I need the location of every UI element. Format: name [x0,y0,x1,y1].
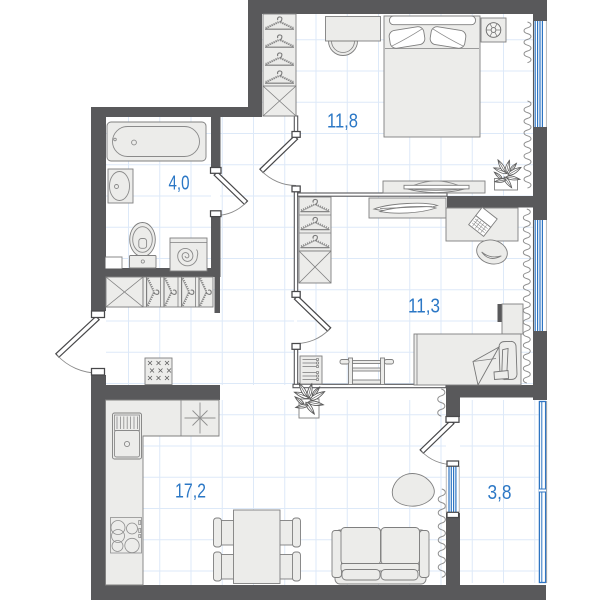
svg-text:11,8: 11,8 [327,111,358,133]
svg-text:3,8: 3,8 [488,482,512,504]
svg-text:11,3: 11,3 [408,296,440,318]
svg-text:4,0: 4,0 [169,173,190,195]
svg-text:17,2: 17,2 [175,481,206,503]
